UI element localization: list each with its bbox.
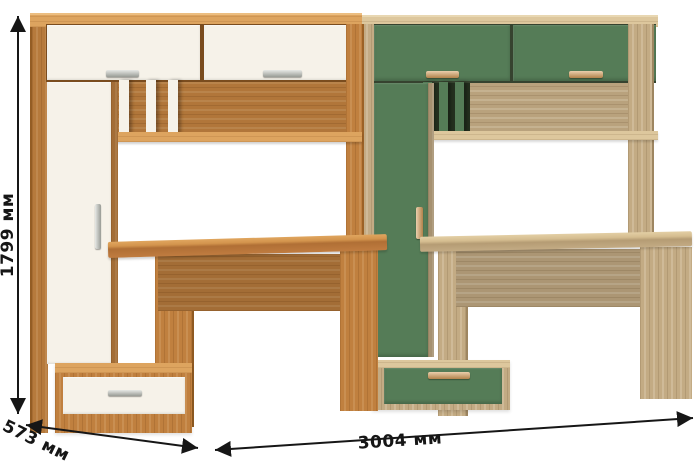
left-desk-wardrobe-unit bbox=[0, 0, 700, 463]
left-unit-desk-right-side-panel bbox=[340, 250, 378, 411]
wardrobe-door-handle bbox=[95, 204, 101, 249]
left-unit-divider-slat bbox=[119, 80, 129, 134]
left-unit-wardrobe-door bbox=[47, 82, 111, 364]
left-unit-divider-slat bbox=[146, 80, 156, 134]
door-handle bbox=[106, 70, 139, 77]
left-unit-wardrobe-right-edge bbox=[111, 82, 118, 364]
left-unit-shelf-board bbox=[107, 132, 362, 142]
left-unit-top-cabinet-door-right bbox=[204, 25, 357, 80]
left-unit-top-cabinet-door-left bbox=[47, 25, 200, 80]
left-unit-divider-slat bbox=[168, 80, 178, 134]
furniture-product-image: 1799 мм 573 мм 3004 мм bbox=[0, 0, 700, 463]
left-unit-drawer-front bbox=[63, 377, 185, 414]
drawer-handle bbox=[108, 390, 142, 396]
height-dimension-label: 1799 мм bbox=[0, 150, 18, 320]
left-unit-desk-back-panel bbox=[158, 254, 344, 311]
left-unit-drawer-box-top bbox=[55, 363, 192, 373]
door-handle bbox=[263, 70, 302, 77]
